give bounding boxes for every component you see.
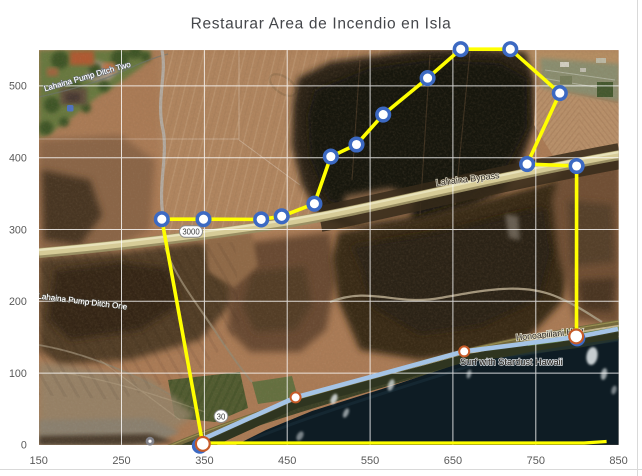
svg-text:250: 250 (112, 455, 130, 467)
svg-text:150: 150 (30, 455, 48, 467)
svg-text:450: 450 (278, 455, 296, 467)
svg-text:Restaurar Area de Incendio en: Restaurar Area de Incendio en Isla (191, 16, 452, 33)
svg-text:100: 100 (9, 368, 27, 380)
svg-text:0: 0 (21, 439, 27, 451)
svg-text:500: 500 (9, 81, 27, 93)
svg-text:3000: 3000 (182, 228, 200, 237)
svg-text:850: 850 (609, 455, 627, 467)
svg-text:30: 30 (217, 412, 226, 421)
svg-text:Surf with Stardust Hawaii: Surf with Stardust Hawaii (460, 357, 563, 367)
svg-text:350: 350 (195, 455, 213, 467)
svg-text:750: 750 (527, 455, 545, 467)
svg-text:400: 400 (9, 153, 27, 165)
svg-text:650: 650 (444, 455, 462, 467)
svg-text:550: 550 (361, 455, 379, 467)
svg-text:300: 300 (9, 224, 27, 236)
svg-text:200: 200 (9, 296, 27, 308)
